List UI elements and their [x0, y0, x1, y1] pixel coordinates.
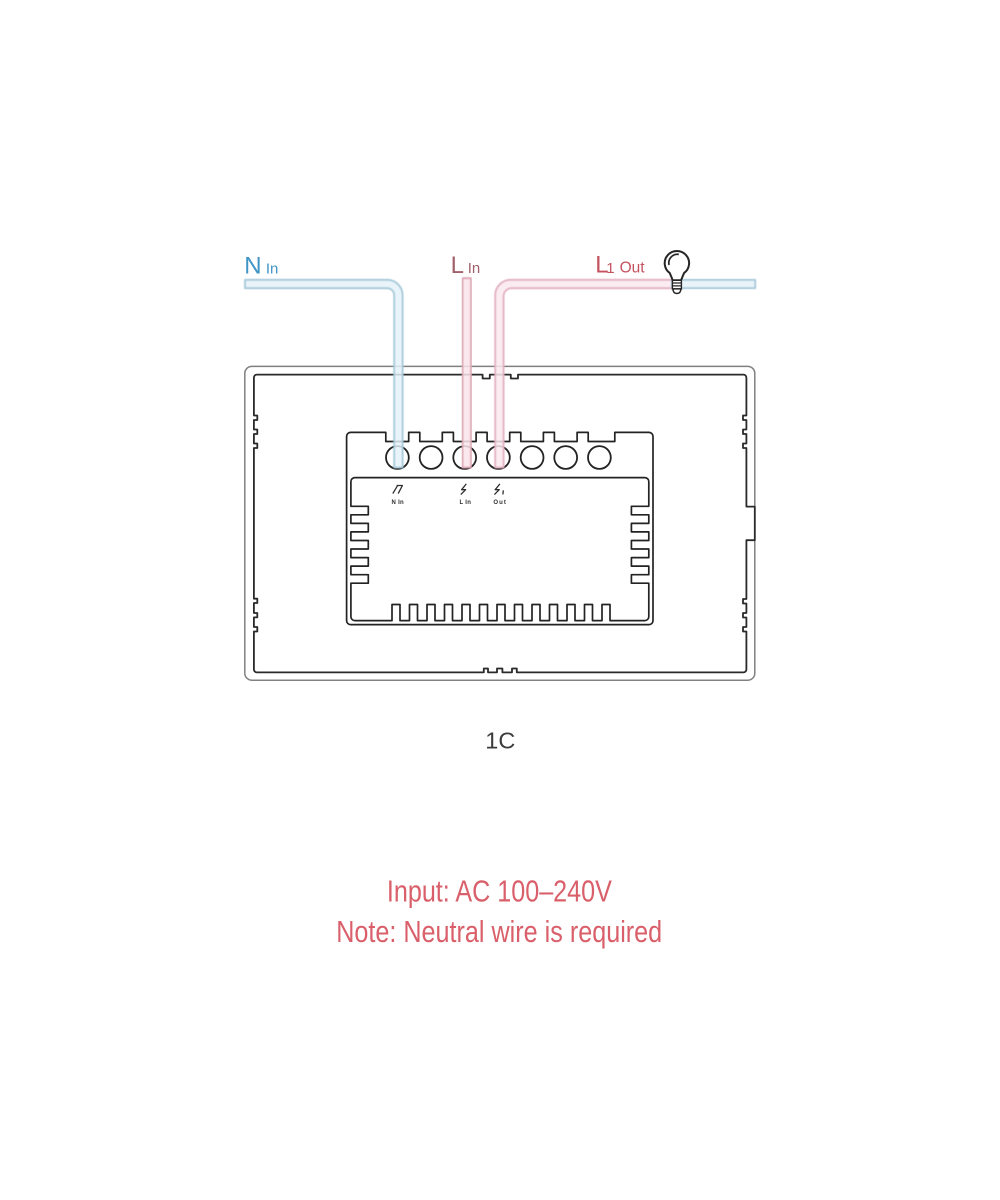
svg-text:Input: AC 100–240V: Input: AC 100–240V: [387, 875, 613, 909]
svg-text:In: In: [468, 260, 481, 277]
svg-text:Out: Out: [620, 260, 646, 277]
svg-text:1C: 1C: [485, 728, 515, 754]
svg-text:L: L: [451, 252, 464, 279]
svg-text:1: 1: [606, 260, 614, 277]
svg-text:Out: Out: [493, 500, 506, 506]
svg-text:Note: Neutral wire is required: Note: Neutral wire is required: [336, 915, 662, 949]
svg-text:In: In: [266, 260, 279, 277]
svg-text:N: N: [244, 253, 261, 280]
svg-text:N In: N In: [392, 500, 405, 506]
svg-text:L In: L In: [459, 500, 471, 506]
